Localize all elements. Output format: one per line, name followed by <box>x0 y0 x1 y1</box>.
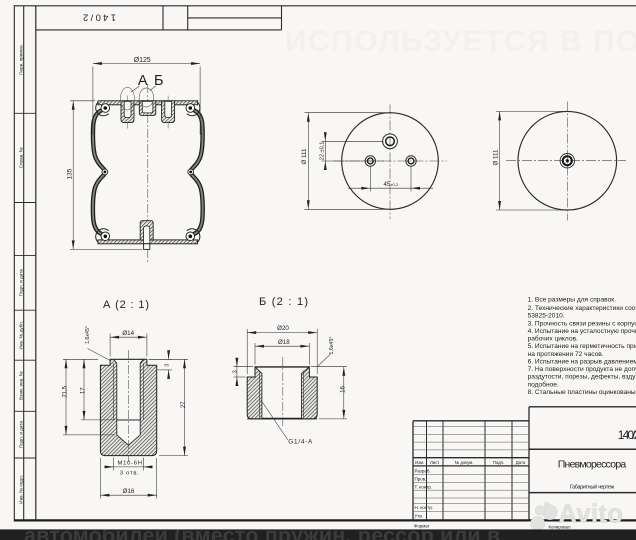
svg-text:16: 16 <box>340 386 346 393</box>
svg-text:Подп.: Подп. <box>493 460 504 465</box>
svg-text:1. Все размеры для справок.: 1. Все размеры для справок. <box>528 296 617 303</box>
svg-text:на протяжении 72 часов.: на протяжении 72 часов. <box>528 351 604 358</box>
svg-text:Н. контр.: Н. контр. <box>415 505 434 510</box>
svg-text:Взам. инв. №: Взам. инв. № <box>18 371 23 400</box>
svg-text:7. На поверхности продукта не: 7. На поверхности продукта не допускаютс… <box>528 366 636 373</box>
svg-text:Копировал: Копировал <box>549 524 571 529</box>
svg-text:ИСПОЛЬЗУЕТСЯ В ПОДВЕСКЕ: ИСПОЛЬЗУЕТСЯ В ПОДВЕСКЕ <box>285 25 636 58</box>
svg-text:подобное.: подобное. <box>528 380 559 388</box>
svg-text:21,5: 21,5 <box>63 385 69 397</box>
svg-text:8. Стальные пластины оцинкован: 8. Стальные пластины оцинкованы. <box>528 389 636 396</box>
svg-text:Подп. и дата: Подп. и дата <box>18 421 23 449</box>
svg-text:G1/4-А: G1/4-А <box>288 438 313 445</box>
svg-text:4. Испытание на усталостную пр: 4. Испытание на усталостную прочность не… <box>528 328 636 335</box>
svg-text:Инв. № подл.: Инв. № подл. <box>18 475 23 504</box>
svg-text:135: 135 <box>67 168 74 179</box>
svg-text:рабочих циклов.: рабочих циклов. <box>528 335 578 343</box>
svg-text:Ø125: Ø125 <box>134 57 151 64</box>
svg-text:раздутости, порезы, дефекты, в: раздутости, порезы, дефекты, вздутия и т… <box>528 374 636 381</box>
svg-text:Ø18: Ø18 <box>278 339 290 346</box>
svg-text:Справ. №: Справ. № <box>18 147 23 168</box>
svg-text:Ø14: Ø14 <box>122 330 134 337</box>
svg-text:140/2: 140/2 <box>83 11 116 22</box>
svg-text:Ø16: Ø16 <box>123 488 135 495</box>
svg-text:3 отв.: 3 отв. <box>120 471 139 477</box>
svg-text:Перв. примен.: Перв. примен. <box>18 44 23 75</box>
svg-text:Лист: Лист <box>430 460 439 465</box>
svg-text:Утв.: Утв. <box>415 514 424 519</box>
svg-text:Инв. № дубл.: Инв. № дубл. <box>18 321 23 349</box>
svg-text:Ø 111: Ø 111 <box>301 148 308 164</box>
svg-text:3: 3 <box>233 370 239 373</box>
svg-text:Габаритный чертеж: Габаритный чертеж <box>570 483 615 490</box>
svg-text:140/2: 140/2 <box>618 428 636 442</box>
svg-text:Пров.: Пров. <box>415 476 427 481</box>
svg-text:1,6х45°: 1,6х45° <box>329 336 335 354</box>
svg-text:22 ±0,1: 22 ±0,1 <box>320 142 326 161</box>
svg-text:Подп. и дата: Подп. и дата <box>18 269 23 297</box>
svg-text:1,6х45°: 1,6х45° <box>85 326 91 344</box>
svg-text:Пневморессора: Пневморессора <box>558 459 627 471</box>
svg-text:17: 17 <box>81 387 87 394</box>
svg-text:53825-2010.: 53825-2010. <box>528 313 565 320</box>
svg-text:Изм.: Изм. <box>415 460 424 465</box>
svg-text:45±0,2: 45±0,2 <box>383 181 398 188</box>
svg-text:Формат: Формат <box>414 524 430 529</box>
svg-text:Ø 111: Ø 111 <box>492 149 499 165</box>
svg-text:5. Испытание на герметичность: 5. Испытание на герметичность при давлен… <box>528 343 636 350</box>
svg-text:М10-6Н: М10-6Н <box>118 461 143 467</box>
svg-text:А (2 : 1): А (2 : 1) <box>103 299 149 311</box>
svg-text:Т. контр.: Т. контр. <box>415 485 433 490</box>
svg-text:А: А <box>138 73 148 89</box>
svg-text:3: 3 <box>165 364 171 367</box>
svg-text:2. Технические характеристики: 2. Технические характеристики соответств… <box>528 305 636 312</box>
svg-text:27: 27 <box>181 401 187 408</box>
svg-text:6. Испытание на разрыв давлени: 6. Испытание на разрыв давлением не мене… <box>528 358 636 365</box>
svg-text:3. Прочность связи резины с ко: 3. Прочность связи резины с корпусом не … <box>528 320 636 327</box>
svg-text:Ø20: Ø20 <box>277 325 289 332</box>
svg-text:Разраб.: Разраб. <box>415 469 431 474</box>
svg-text:№ докум.: № докум. <box>455 460 474 465</box>
svg-text:Дата: Дата <box>516 460 526 465</box>
